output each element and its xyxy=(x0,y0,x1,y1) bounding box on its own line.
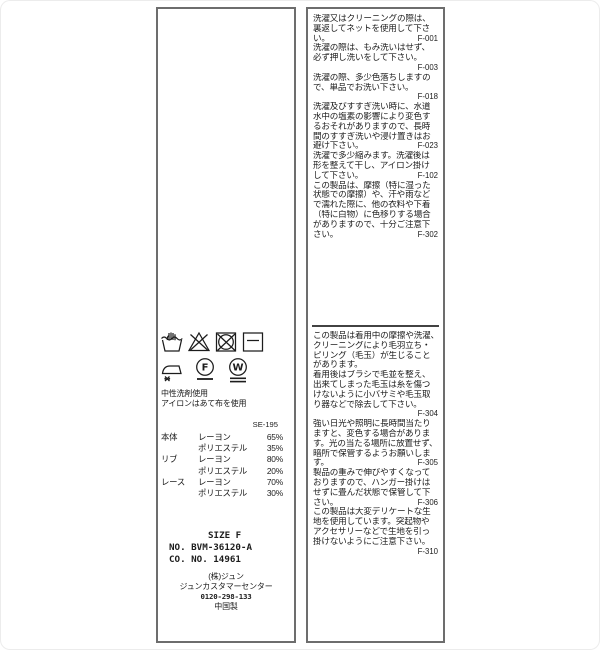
instruction-line: F-003 xyxy=(313,63,438,73)
composition-percent: 35% xyxy=(267,443,283,454)
composition-row: ポリエステル 35% xyxy=(161,443,283,454)
care-notes: 中性洗剤使用 アイロンはあて布を使用 xyxy=(161,389,246,408)
instruction-line: るおそれがありますので、長時 xyxy=(313,122,438,132)
composition-fiber: ポリエステル xyxy=(198,488,267,499)
instruction-text: 間のすすぎ洗いや浸け置きはお xyxy=(313,132,431,142)
instruction-line: 形を整えて干し、アイロン掛け xyxy=(313,161,438,171)
instruction-code: F-306 xyxy=(418,498,438,508)
instruction-text: 洗濯の際は、もみ洗いはせず、 xyxy=(313,43,430,53)
size-label: SIZE F xyxy=(208,530,252,542)
instruction-text: 出来てしまった毛玉は糸を傷つ xyxy=(313,380,430,390)
instruction-line: F-018 xyxy=(313,92,438,102)
composition-part: 本体 xyxy=(161,432,198,443)
instruction-text: して下さい。 xyxy=(313,171,363,181)
dry-flat-icon xyxy=(241,330,265,354)
section-divider xyxy=(312,325,439,327)
instruction-text: で、単品でお洗い下さい。 xyxy=(313,83,413,93)
composition-row: レース レーヨン 70% xyxy=(161,477,283,488)
company-name: (株)ジュン xyxy=(158,572,294,582)
instruction-code: F-302 xyxy=(418,230,438,240)
composition-percent: 70% xyxy=(267,477,283,488)
instruction-code: F-305 xyxy=(418,458,438,468)
instruction-text: 洗濯又はクリーニングの際は、 xyxy=(313,14,431,24)
instruction-line: 洗濯又はクリーニングの際は、 xyxy=(313,14,438,24)
company-block: (株)ジュン ジュンカスタマーセンター 0120-298-133 中国製 xyxy=(158,572,294,612)
instruction-text: す。 xyxy=(313,458,329,468)
instruction-text: い。 xyxy=(313,34,330,44)
composition-part: リブ xyxy=(161,454,198,465)
instruction-line: さい。 F-302 xyxy=(313,230,438,240)
do-not-tumble-dry-icon xyxy=(214,330,238,354)
instruction-line: で、単品でお洗い下さい。 xyxy=(313,83,438,93)
instruction-line: 強い日光や照明に長時間当たり xyxy=(313,419,438,429)
instruction-line: この製品は、摩擦（特に湿った xyxy=(313,181,438,191)
instruction-text: がありますので、十分ご注意下 xyxy=(313,220,430,230)
care-label-left-panel: F W 中性洗剤使用 アイロンはあて布を使用 SE-195 本体 xyxy=(156,7,296,643)
instruction-code: F-003 xyxy=(418,63,438,73)
ref-code: SE-195 xyxy=(253,420,278,429)
instruction-line: この製品は大変デリケートな生 xyxy=(313,507,438,517)
instruction-line: クリーニングにより毛羽立ち・ xyxy=(313,341,438,351)
do-not-bleach-icon xyxy=(187,330,211,354)
instruction-text: 洗濯の際、多少色落ちしますの xyxy=(313,73,431,83)
instruction-text: さい。 xyxy=(313,498,338,508)
instruction-text: この製品は着用中の摩擦や洗濯、 xyxy=(313,331,438,341)
instruction-line: この製品は着用中の摩擦や洗濯、 xyxy=(313,331,438,341)
instruction-text: アクセサリーなどで生地を引っ xyxy=(313,527,430,537)
product-number: NO. BVM-36120-A xyxy=(169,542,252,554)
care-note-line: アイロンはあて布を使用 xyxy=(161,399,246,409)
instruction-line: 裏返してネットを使用して下さ xyxy=(313,24,438,34)
instruction-code: F-310 xyxy=(418,547,438,557)
instruction-line: 出来てしまった毛玉は糸を傷つ xyxy=(313,380,438,390)
instruction-line: せずに畳んだ状態で保管して下 xyxy=(313,488,438,498)
instruction-line: F-310 xyxy=(313,547,438,557)
instruction-text: 形を整えて干し、アイロン掛け xyxy=(313,161,430,171)
instruction-line: い。 F-001 xyxy=(313,34,438,44)
instruction-line: 必ず押し洗いをして下さい。 xyxy=(313,53,438,63)
instruction-text: この製品は大変デリケートな生 xyxy=(313,507,431,517)
instruction-text: おりますので、ハンガー掛けは xyxy=(313,478,430,488)
instruction-text: 洗濯及びすすぎ洗い時に、水道 xyxy=(313,102,430,112)
instruction-line: 洗濯の際、多少色落ちしますの xyxy=(313,73,438,83)
instruction-code: F-023 xyxy=(418,141,438,151)
care-symbols-row-1 xyxy=(160,330,265,354)
instruction-text: （特に白物）に色移りする場合 xyxy=(313,210,431,220)
instruction-line: 製品の重みで伸びやすくなって xyxy=(313,468,438,478)
instruction-text: 裏返してネットを使用して下さ xyxy=(313,24,430,34)
instruction-line: り器などで除去して下さい。 xyxy=(313,400,438,410)
instruction-text: 掛けないようにご注意下さい。 xyxy=(313,537,430,547)
instruction-line: す。 F-305 xyxy=(313,458,438,468)
instruction-line: 洗濯の際は、もみ洗いはせず、 xyxy=(313,43,438,53)
instruction-line: F-304 xyxy=(313,409,438,419)
wet-clean-very-gentle-icon: W xyxy=(226,357,250,383)
composition-percent: 65% xyxy=(267,432,283,443)
instruction-line: ますと、変色する場合がありま xyxy=(313,429,438,439)
instruction-line: 洗濯及びすすぎ洗い時に、水道 xyxy=(313,102,438,112)
composition-fiber: レーヨン xyxy=(198,477,267,488)
composition-fiber: レーヨン xyxy=(198,432,267,443)
svg-text:F: F xyxy=(202,363,209,374)
instruction-line: 洗濯で多少縮みます。洗濯後は xyxy=(313,151,438,161)
instruction-text: この製品は、摩擦（特に湿った xyxy=(313,181,431,191)
instruction-code: F-102 xyxy=(418,171,438,181)
instruction-text: 避け下さい。 xyxy=(313,141,363,151)
instruction-line: ピリング（毛玉）が生じること xyxy=(313,351,438,361)
care-symbols-row-2: F W xyxy=(160,357,250,383)
instruction-line: おりますので、ハンガー掛けは xyxy=(313,478,438,488)
dry-clean-petroleum-gentle-icon: F xyxy=(193,357,217,383)
instruction-text: 地を使用しています。突起物や xyxy=(313,517,429,527)
instruction-line: す。光の当たる場所に放置せず、 xyxy=(313,439,438,449)
instruction-text: 強い日光や照明に長時間当たり xyxy=(313,419,431,429)
composition-row: ポリエステル 30% xyxy=(161,488,283,499)
instruction-line: 間のすすぎ洗いや浸け置きはお xyxy=(313,132,438,142)
instruction-line: 掛けないようにご注意下さい。 xyxy=(313,537,438,547)
instruction-line: 水中の塩素の影響により変色す xyxy=(313,112,438,122)
composition-fiber: ポリエステル xyxy=(198,443,267,454)
care-note-line: 中性洗剤使用 xyxy=(161,389,246,399)
svg-text:W: W xyxy=(232,363,243,374)
composition-part xyxy=(161,443,198,454)
instructions-top-section: 洗濯又はクリーニングの際は、 裏返してネットを使用して下さ い。 F-001 洗… xyxy=(313,14,438,239)
instruction-text: 洗濯で多少縮みます。洗濯後は xyxy=(313,151,430,161)
instruction-line: （特に白物）に色移りする場合 xyxy=(313,210,438,220)
instruction-text: す。光の当たる場所に放置せず、 xyxy=(313,439,437,449)
instruction-line: して下さい。 F-102 xyxy=(313,171,438,181)
instructions-bottom-section: この製品は着用中の摩擦や洗濯、 クリーニングにより毛羽立ち・ ピリング（毛玉）が… xyxy=(313,331,438,556)
composition-fiber: レーヨン xyxy=(198,454,267,465)
instruction-text: クリーニングにより毛羽立ち・ xyxy=(313,341,430,351)
instruction-line: 着用後はブラシで毛並を整え、 xyxy=(313,370,438,380)
instruction-text: せずに畳んだ状態で保管して下 xyxy=(313,488,430,498)
hand-wash-icon xyxy=(160,330,184,354)
instruction-line: で濡れた際に、他の衣料や下着 xyxy=(313,200,438,210)
instruction-text: ますと、変色する場合がありま xyxy=(313,429,430,439)
instruction-text: 水中の塩素の影響により変色す xyxy=(313,112,430,122)
instruction-text: 状態での摩擦）や、汗や雨など xyxy=(313,190,430,200)
instruction-text: り器などで除去して下さい。 xyxy=(313,400,422,410)
co-number: CO. NO. 14961 xyxy=(169,554,252,566)
composition-percent: 20% xyxy=(267,466,283,477)
instruction-line: けないように小バサミや毛玉取 xyxy=(313,390,438,400)
product-id-block: SIZE F NO. BVM-36120-A CO. NO. 14961 xyxy=(169,530,252,567)
composition-part: レース xyxy=(161,477,198,488)
instruction-text: るおそれがありますので、長時 xyxy=(313,122,430,132)
instruction-text: 暗所で保管するようお願いしま xyxy=(313,449,431,459)
phone-number: 0120-298-133 xyxy=(158,592,294,602)
instruction-text: さい。 xyxy=(313,230,338,240)
composition-percent: 30% xyxy=(267,488,283,499)
instruction-text: 必ず押し洗いをして下さい。 xyxy=(313,53,422,63)
instruction-line: がありますので、十分ご注意下 xyxy=(313,220,438,230)
instruction-text: 着用後はブラシで毛並を整え、 xyxy=(313,370,430,380)
instruction-text: けないように小バサミや毛玉取 xyxy=(313,390,430,400)
instruction-text: で濡れた際に、他の衣料や下着 xyxy=(313,200,430,210)
instruction-line: 地を使用しています。突起物や xyxy=(313,517,438,527)
composition-part xyxy=(161,488,198,499)
instruction-line: 暗所で保管するようお願いしま xyxy=(313,449,438,459)
composition-table: 本体 レーヨン 65% ポリエステル 35% リブ レーヨン 80% xyxy=(161,432,283,499)
composition-row: リブ レーヨン 80% xyxy=(161,454,283,465)
composition-fiber: ポリエステル xyxy=(198,466,267,477)
care-label-photo: F W 中性洗剤使用 アイロンはあて布を使用 SE-195 本体 xyxy=(0,0,600,650)
instruction-code: F-018 xyxy=(418,92,438,102)
care-label-right-panel: 洗濯又はクリーニングの際は、 裏返してネットを使用して下さ い。 F-001 洗… xyxy=(306,7,445,643)
instruction-line: 状態での摩擦）や、汗や雨など xyxy=(313,190,438,200)
instruction-text: ピリング（毛玉）が生じること xyxy=(313,351,431,361)
instruction-text: 製品の重みで伸びやすくなって xyxy=(313,468,430,478)
instruction-text: があります。 xyxy=(313,360,363,370)
customer-center: ジュンカスタマーセンター xyxy=(158,582,294,592)
instruction-line: さい。 F-306 xyxy=(313,498,438,508)
composition-part xyxy=(161,466,198,477)
country-of-origin: 中国製 xyxy=(158,602,294,612)
instruction-line: があります。 xyxy=(313,360,438,370)
composition-row: 本体 レーヨン 65% xyxy=(161,432,283,443)
instruction-line: 避け下さい。 F-023 xyxy=(313,141,438,151)
composition-row: ポリエステル 20% xyxy=(161,466,283,477)
iron-low-no-steam-icon xyxy=(160,357,184,383)
instruction-line: アクセサリーなどで生地を引っ xyxy=(313,527,438,537)
instruction-code: F-001 xyxy=(418,34,438,44)
instruction-code: F-304 xyxy=(418,409,438,419)
composition-percent: 80% xyxy=(267,454,283,465)
